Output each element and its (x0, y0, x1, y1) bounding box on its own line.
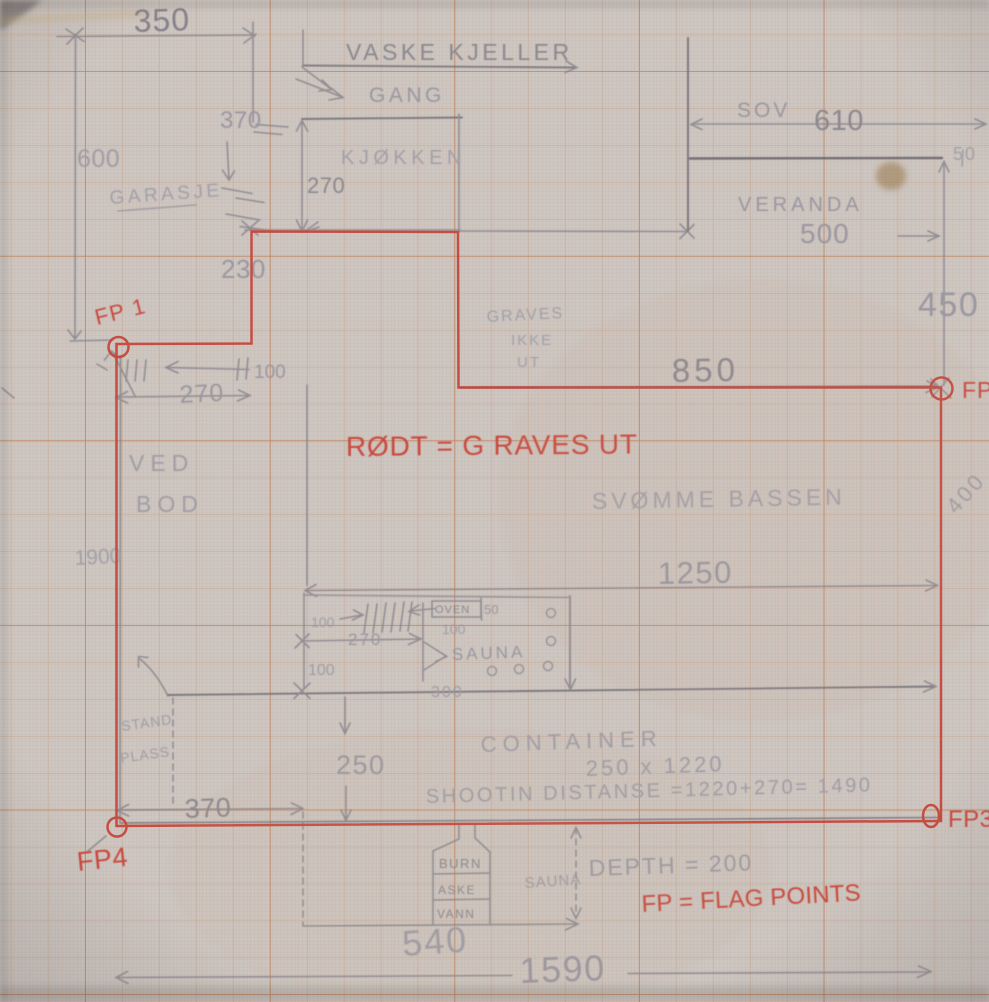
svg-text:UT: UT (517, 354, 541, 371)
svg-text:GANG: GANG (369, 84, 445, 107)
svg-text:270: 270 (179, 379, 225, 409)
svg-text:SAUNA: SAUNA (451, 642, 525, 664)
svg-text:FP4: FP4 (75, 842, 129, 877)
svg-text:100: 100 (311, 614, 335, 630)
svg-text:600: 600 (77, 145, 120, 173)
svg-text:100: 100 (254, 362, 286, 383)
svg-text:100: 100 (308, 662, 335, 679)
svg-text:230: 230 (221, 254, 266, 284)
svg-text:VERANDA: VERANDA (738, 194, 863, 216)
svg-text:SOV: SOV (737, 99, 790, 122)
svg-text:VED: VED (129, 450, 194, 476)
svg-text:KJØKKEN: KJØKKEN (341, 147, 466, 169)
svg-text:OVEN: OVEN (435, 604, 470, 616)
svg-text:50: 50 (484, 602, 498, 617)
svg-text:100: 100 (442, 621, 466, 637)
svg-text:50: 50 (953, 144, 977, 164)
svg-text:450: 450 (918, 286, 979, 324)
svg-text:IKKE: IKKE (511, 332, 553, 349)
svg-text:300: 300 (431, 684, 464, 701)
svg-text:370: 370 (220, 107, 262, 134)
svg-text:610: 610 (814, 105, 864, 137)
svg-text:VASKE KJELLER: VASKE KJELLER (346, 39, 573, 65)
svg-text:1900: 1900 (74, 545, 122, 570)
svg-text:270: 270 (307, 173, 345, 198)
svg-text:500: 500 (800, 218, 850, 249)
svg-text:270: 270 (348, 630, 382, 649)
svg-text:BOD: BOD (136, 491, 204, 517)
svg-text:FP3: FP3 (948, 806, 989, 833)
